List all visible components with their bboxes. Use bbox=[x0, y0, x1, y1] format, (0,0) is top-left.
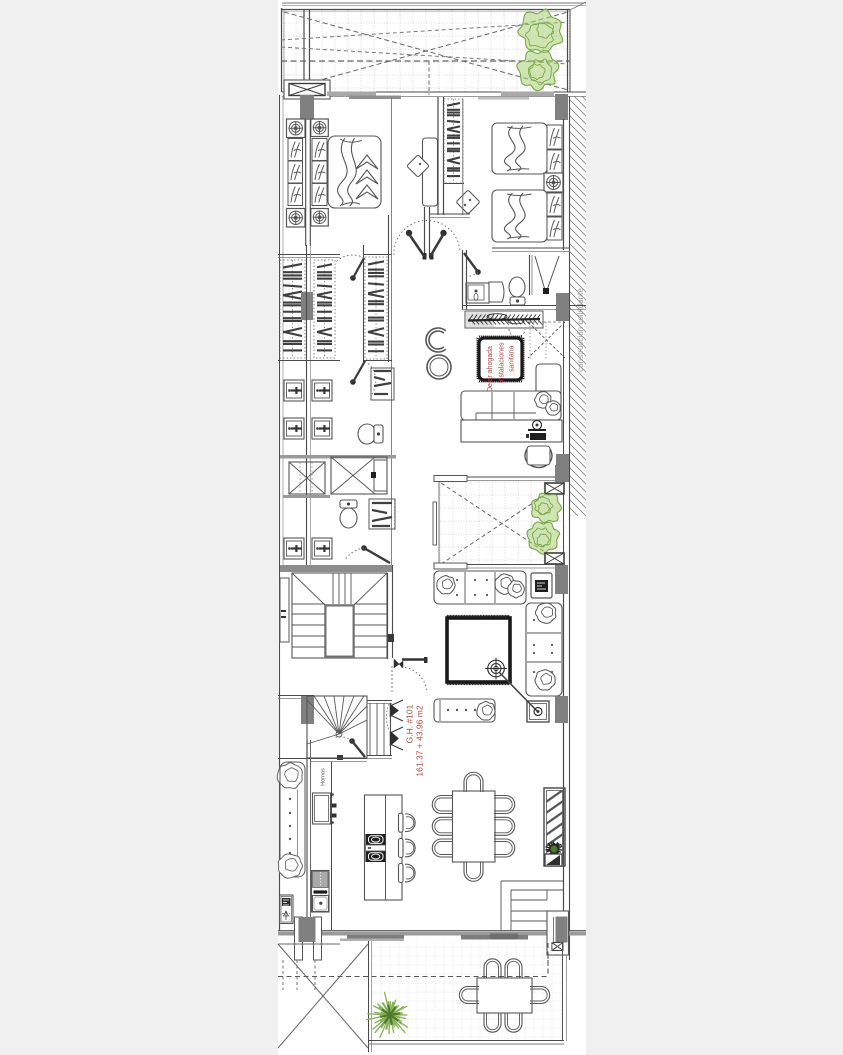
svg-text:instalaciones: instalaciones bbox=[499, 342, 506, 383]
svg-text:Dejar ahogada: Dejar ahogada bbox=[487, 346, 494, 392]
svg-text:sanitaria: sanitaria bbox=[509, 345, 516, 372]
svg-text:Hornos: Hornos bbox=[321, 768, 327, 786]
svg-text:G.H. #101: G.H. #101 bbox=[405, 704, 415, 743]
svg-text:construcción colindante: construcción colindante bbox=[576, 288, 585, 372]
svg-text:161.37 + 43.96 m2: 161.37 + 43.96 m2 bbox=[414, 705, 424, 776]
